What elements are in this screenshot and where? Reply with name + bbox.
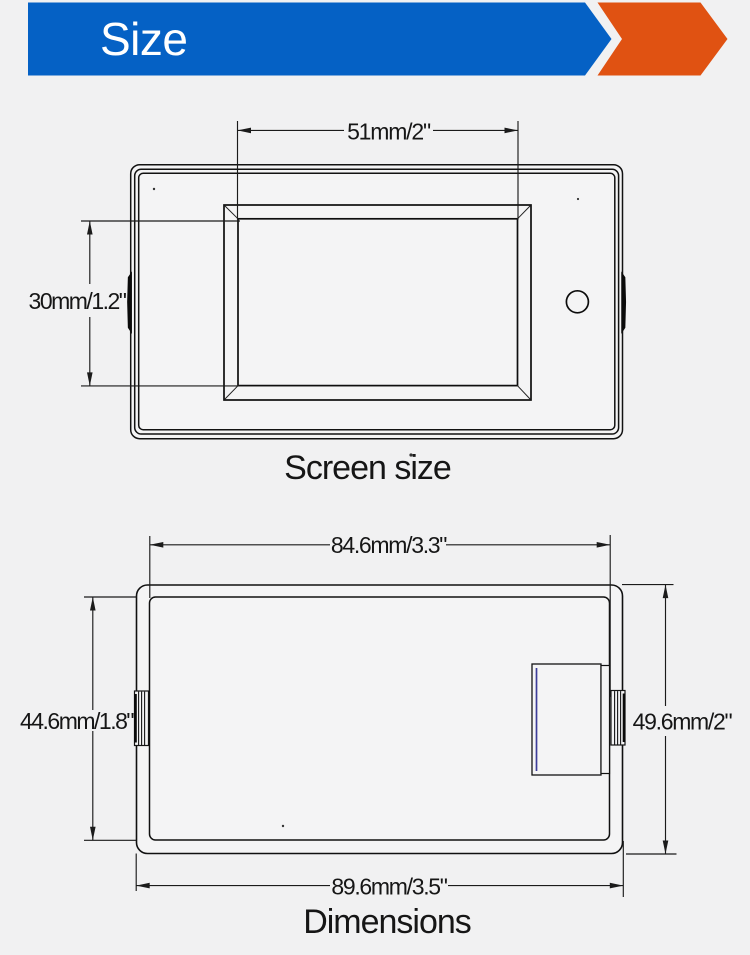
svg-text:49.6mm/2": 49.6mm/2" [633,708,733,734]
svg-text:51mm/2": 51mm/2" [347,118,431,144]
svg-text:Size: Size [100,13,187,65]
svg-text:84.6mm/3.3": 84.6mm/3.3" [331,532,447,558]
svg-text:Screen size: Screen size [284,449,451,487]
svg-text:89.6mm/3.5": 89.6mm/3.5" [331,873,447,899]
svg-text:44.6mm/1.8": 44.6mm/1.8" [20,708,134,734]
svg-text:Dimensions: Dimensions [303,903,471,941]
svg-text:30mm/1.2": 30mm/1.2" [29,288,127,314]
